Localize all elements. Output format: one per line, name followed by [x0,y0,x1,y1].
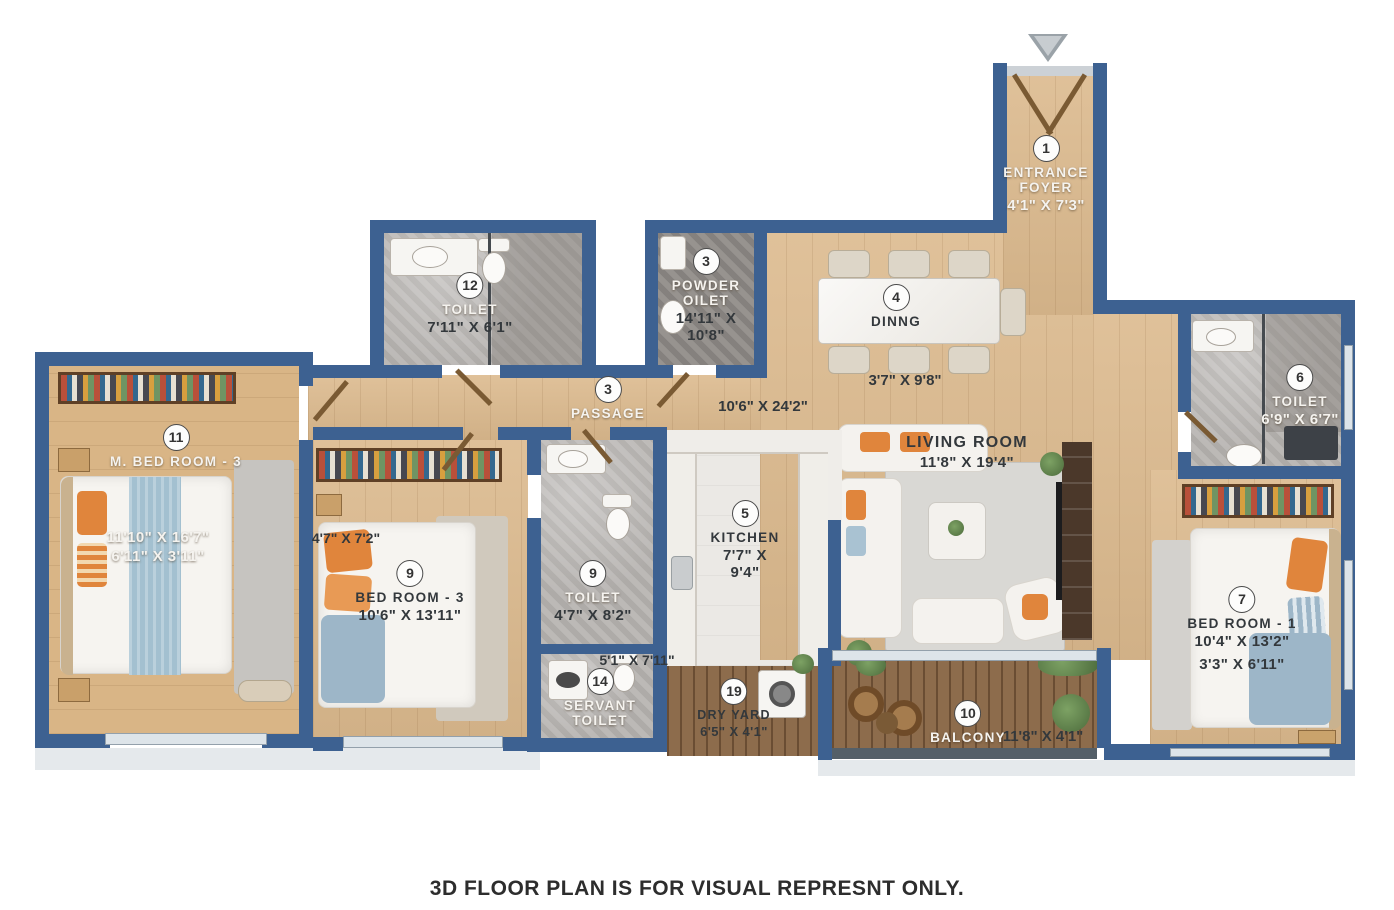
room-number-badge: 12 [456,272,483,299]
potted-plant [1052,694,1090,732]
room-dims: 7'11" X 6'1" [427,319,512,336]
wall-segment [1093,300,1355,314]
wall-segment [313,365,373,378]
nightstand [316,494,342,516]
room-label-powder-toilet: 3 POWDER OILET 14'11" X 10'8" [658,248,754,344]
headboard [61,477,73,675]
disclaimer-text: 3D FLOOR PLAN IS FOR VISUAL REPRESNT ONL… [430,877,964,901]
exterior-shadow [818,760,1108,776]
wall-segment [653,430,667,752]
wall-segment [527,738,667,752]
room-dims-master-bedroom: 11'10" X 16'7" 6'11" X 3'11" [107,527,210,565]
sliding-window [832,650,1097,661]
plant [792,654,814,674]
cushion [846,490,866,520]
wall-segment [299,352,313,386]
blanket [321,615,385,703]
dining-chair [828,346,870,374]
room-dims-servant-toilet: 5'1" X 7'11" [599,652,674,668]
room-name: M. BED ROOM - 3 [110,454,242,469]
room-number-badge: 5 [732,500,759,527]
wall-segment [645,220,767,233]
stove [800,462,826,516]
toilet-bowl [1226,444,1262,468]
wall-segment [370,220,596,233]
wall-segment [370,220,384,378]
entrance-threshold [1007,66,1093,76]
blanket [129,477,181,675]
room-number-badge: 11 [162,424,189,451]
floor-plan-page: { "page": { "footer": "3D FLOOR PLAN IS … [0,0,1394,910]
room-dims-2: 6'11" X 3'11" [107,548,210,565]
room-name: BED ROOM - 3 [355,590,464,605]
wall-segment [313,427,463,440]
room-label-living-room: LIVING ROOM 11'8" X 19'4" [906,434,1028,471]
rug [234,460,294,694]
room-label-toilet-12: 12 TOILET 7'11" X 6'1" [427,272,512,336]
wall-segment [645,365,673,378]
rug [1152,540,1192,730]
room-name: DRY YARD [697,708,771,722]
exterior-shadow [1097,760,1355,776]
plant [1040,452,1064,476]
pillow [77,543,107,587]
bench [238,680,292,702]
room-name: BALCONY [930,730,1006,745]
bath-fixture [1284,426,1338,460]
cushion [860,432,890,452]
wall-segment [527,518,541,752]
nightstand [58,678,90,702]
room-name: ENTRANCE FOYER [998,165,1094,195]
room-label-entrance-foyer: 1 ENTRANCE FOYER 4'1" X 7'3" [998,135,1094,214]
room-dims-2: 3'3" X 6'11" [1187,656,1296,673]
room-number-badge: 14 [587,668,614,695]
room-name: TOILET [427,302,512,317]
room-dims-bedroom-3-extra: 4'7" X 7'2" [312,530,380,546]
kitchen-sink [671,556,693,590]
wall-segment [828,520,841,666]
entrance-arrow-icon [1028,34,1068,62]
tv [1056,482,1062,600]
sofa [912,598,1004,644]
wall-segment [35,734,110,748]
room-label-servant-toilet: 14 SERVANT TOILET [552,668,648,728]
room-dims: 10'6" X 13'11" [355,607,464,624]
washer-drum [769,681,795,707]
wall-segment [384,365,442,378]
room-name: KITCHEN [697,530,793,545]
tv-console [1062,442,1092,640]
wall-segment [541,427,571,440]
wardrobe [58,372,236,404]
room-number-badge: 3 [595,376,622,403]
floor-plan-canvas: 1 ENTRANCE FOYER 4'1" X 7'3" 12 TOILET 7… [0,0,1394,910]
toilet-bowl [606,508,630,540]
wall-segment [35,352,49,748]
window [343,736,503,748]
wall-segment [767,220,1007,233]
room-label-kitchen: 5 KITCHEN 7'7" X 9'4" [697,500,793,581]
exterior-shadow [35,748,540,770]
wall-segment [262,734,313,748]
wall-segment [1178,300,1191,412]
wall-segment [498,427,541,440]
wall-segment [1178,466,1355,479]
cushion [1022,594,1048,620]
wall-segment [610,427,667,440]
room-label-master-bedroom: 11 M. BED ROOM - 3 [110,424,242,469]
room-number-badge: 4 [883,284,910,311]
wall-segment [1097,648,1111,748]
window [1344,560,1353,690]
room-number-badge: 9 [580,560,607,587]
balcony-railing [832,748,1097,759]
room-dims: 11'8" X 19'4" [906,454,1028,471]
wall-segment [299,440,313,748]
room-label-dry-yard: 19 DRY YARD 6'5" X 4'1" [697,678,771,739]
room-dims: 6'5" X 4'1" [697,724,771,739]
room-name: LIVING ROOM [906,434,1028,452]
room-dims-passage: 10'6" X 24'2" [718,398,808,415]
pillow [77,491,107,535]
wall-segment [645,220,658,378]
room-number-badge: 10 [954,700,981,727]
room-name: TOILET [554,590,631,605]
window [105,733,267,745]
wall-segment [313,737,343,751]
room-name: PASSAGE [571,406,645,421]
wall-segment [754,220,767,378]
room-label-dining: 4 DINNG [871,284,921,329]
dining-chair [888,346,930,374]
room-dims-balcony: 11'8" X 4'1" [1003,728,1084,745]
wall-segment [1093,63,1107,314]
wall-segment [716,365,767,378]
dining-chair [1000,288,1026,336]
room-dims: 4'1" X 7'3" [998,197,1094,214]
sink [412,246,448,268]
wall-segment [818,648,832,760]
room-label-bedroom-3: 9 BED ROOM - 3 10'6" X 13'11" [355,560,464,624]
dining-chair [888,250,930,278]
cushion [846,526,866,556]
room-dims: 4'7" X 8'2" [554,607,631,624]
toilet-tank [602,494,632,508]
side-table [876,712,898,734]
nightstand [1298,730,1336,744]
room-name: TOILET [1261,394,1338,409]
window [1344,345,1353,430]
pass-through-counter [828,430,842,522]
window [1170,748,1330,757]
toilet-tank [478,238,510,252]
plant [948,520,964,536]
sink [1206,328,1236,346]
room-dims: 10'4" X 13'2" [1187,633,1296,650]
nightstand [58,448,90,472]
room-number-badge: 6 [1287,364,1314,391]
wardrobe [1182,484,1334,518]
room-label-toilet-9: 9 TOILET 4'7" X 8'2" [554,560,631,624]
room-number-badge: 9 [396,560,423,587]
dining-chair [948,250,990,278]
room-dims-dining: 3'7" X 9'8" [868,372,941,389]
room-label-passage: 3 PASSAGE [571,376,645,421]
room-number-badge: 19 [721,678,748,705]
room-number-badge: 7 [1228,586,1255,613]
sink [558,450,588,468]
dining-chair [948,346,990,374]
room-name: BED ROOM - 1 [1187,616,1296,631]
room-dims: 14'11" X 10'8" [670,310,742,344]
room-dims: 11'10" X 16'7" [107,529,210,546]
room-dims: 6'9" X 6'7" [1261,411,1338,428]
bed [60,476,232,674]
dining-chair [828,250,870,278]
room-number-badge: 1 [1033,135,1060,162]
wall-segment [503,737,541,751]
room-dims: 7'7" X 9'4" [709,547,781,581]
kitchen-counter [667,430,828,454]
room-name: SERVANT TOILET [552,698,648,728]
wardrobe [316,448,502,482]
wall-segment [582,220,596,378]
room-number-badge: 3 [693,248,720,275]
room-label-bedroom-1: 7 BED ROOM - 1 10'4" X 13'2" 3'3" X 6'11… [1187,586,1296,673]
room-label-balcony: 10 BALCONY [930,700,1006,745]
room-label-toilet-6: 6 TOILET 6'9" X 6'7" [1261,364,1338,428]
room-name: DINNG [871,314,921,329]
wall-segment [35,352,313,366]
pillow [1286,537,1329,594]
room-name: POWDER OILET [658,278,754,308]
